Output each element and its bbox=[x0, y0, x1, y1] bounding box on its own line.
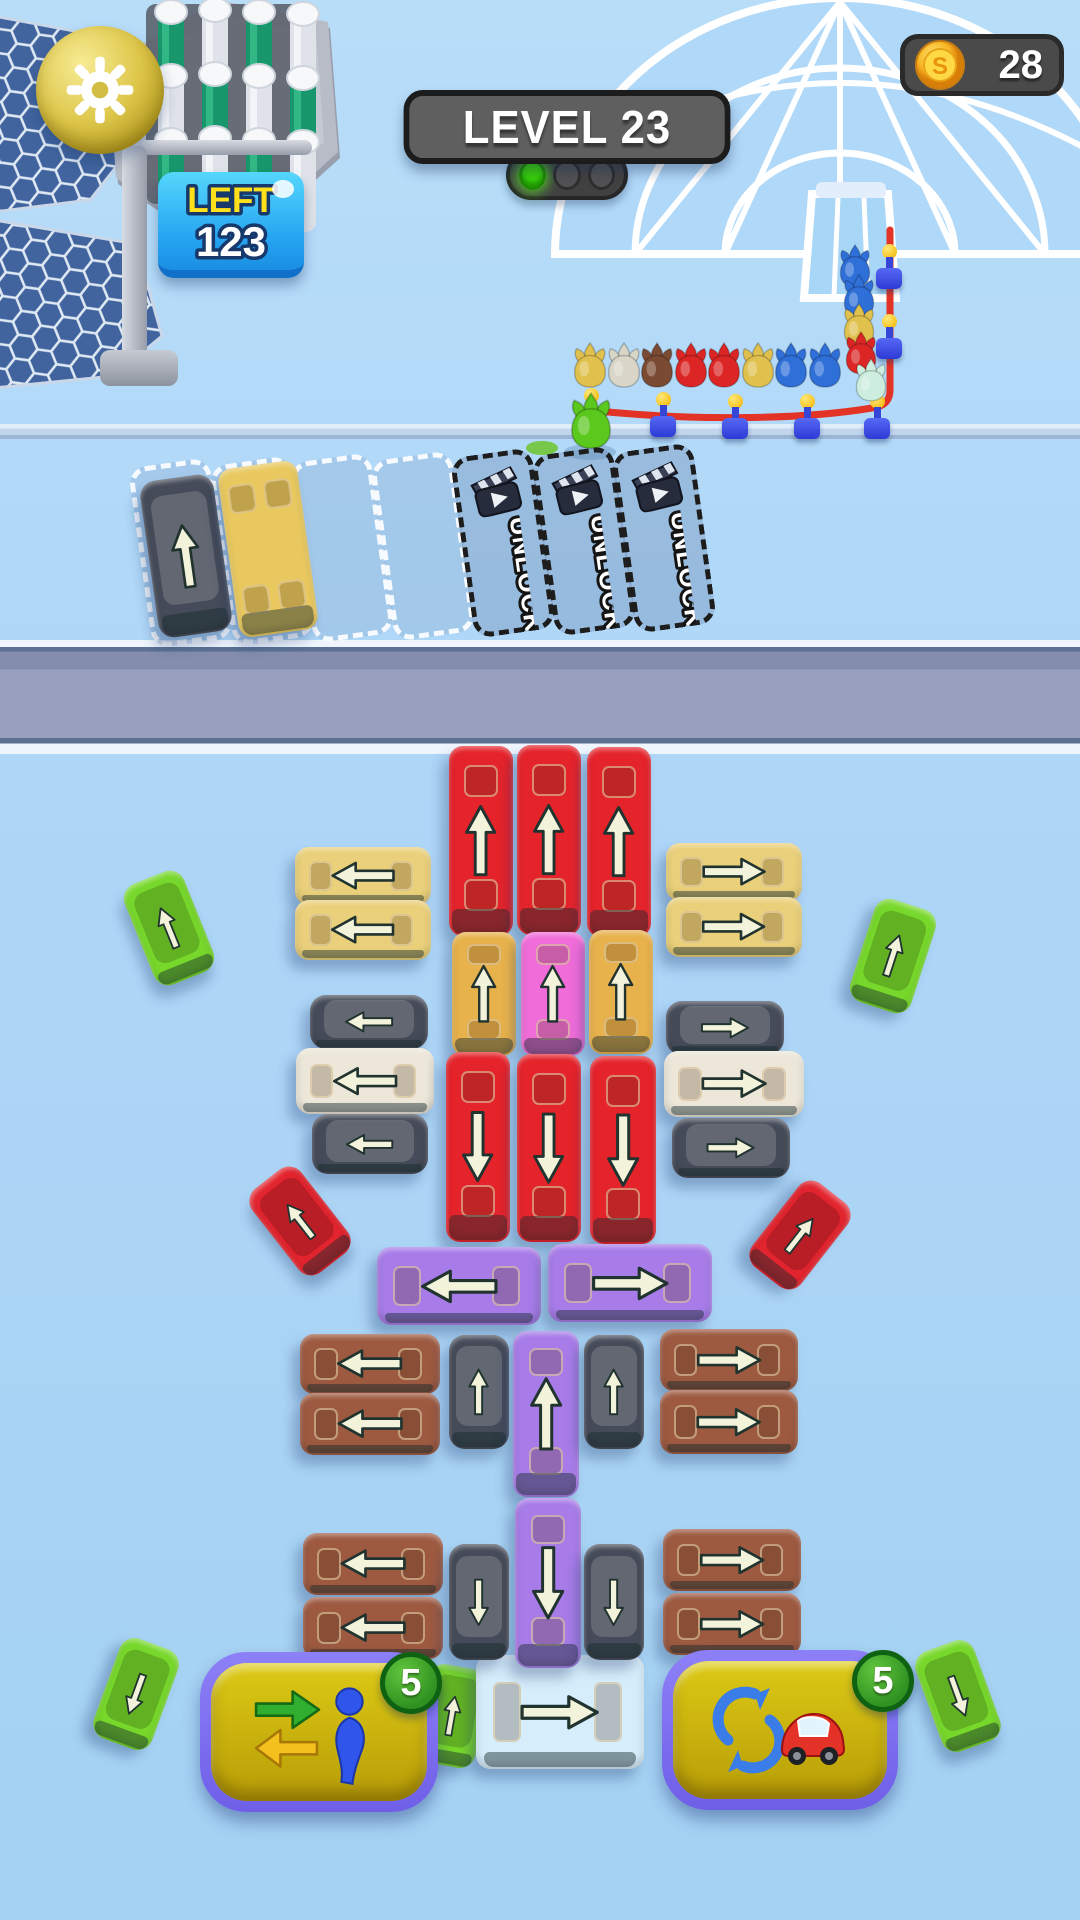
coin-counter: S 28 bbox=[900, 34, 1064, 96]
vehicle-front-face bbox=[307, 1445, 433, 1453]
vehicle-brown-bus-left[interactable] bbox=[300, 1393, 440, 1455]
swap-badge-count: 5 bbox=[400, 1662, 421, 1705]
vehicle-front-face bbox=[671, 1106, 797, 1115]
vehicle-white-bus-left[interactable] bbox=[296, 1048, 434, 1114]
vehicle-red-bus-down[interactable] bbox=[517, 1054, 581, 1242]
bus-window bbox=[536, 944, 569, 965]
unlock-label: UNLOCK bbox=[504, 515, 536, 635]
gray-light bbox=[588, 160, 615, 190]
direction-arrow-icon bbox=[346, 1128, 395, 1159]
direction-arrow-icon bbox=[700, 1014, 750, 1042]
swap-badge: 5 bbox=[380, 1652, 442, 1714]
bus-window bbox=[680, 857, 703, 887]
bus-window bbox=[309, 914, 332, 945]
ad-clapper-icon bbox=[468, 464, 524, 518]
direction-arrow-icon bbox=[606, 1105, 640, 1195]
bus-window bbox=[677, 1544, 700, 1576]
vehicle-front-face bbox=[302, 950, 424, 958]
vehicle-front-face bbox=[593, 1218, 652, 1242]
vehicle-brown-bus-right[interactable] bbox=[660, 1329, 798, 1391]
direction-arrow-icon bbox=[591, 1263, 670, 1304]
bus-window bbox=[531, 1515, 565, 1544]
game-screen: LEFT 123 LEVEL 23 S 28 UNLOCKUNLOCKUNLOC… bbox=[0, 0, 1080, 1920]
vehicle-green-car-up[interactable] bbox=[119, 866, 219, 990]
direction-arrow-icon bbox=[420, 1266, 499, 1307]
bus-window bbox=[262, 477, 293, 509]
direction-arrow-icon bbox=[700, 1067, 767, 1101]
vehicle-brown-bus-left[interactable] bbox=[303, 1533, 443, 1595]
vehicle-green-car-down[interactable] bbox=[89, 1634, 184, 1755]
vehicle-lightBlue-bus-right[interactable] bbox=[476, 1655, 644, 1769]
settings-button[interactable] bbox=[36, 26, 164, 154]
bus-window bbox=[467, 944, 500, 965]
direction-arrow-icon bbox=[330, 914, 395, 945]
road-band bbox=[0, 640, 1080, 754]
direction-arrow-icon bbox=[598, 1368, 629, 1416]
rope-post bbox=[876, 244, 902, 290]
direction-arrow-icon bbox=[336, 1408, 403, 1440]
unlock-label: UNLOCK bbox=[665, 510, 697, 630]
vehicle-black-car-up[interactable] bbox=[449, 1335, 509, 1449]
direction-arrow-icon bbox=[598, 1578, 629, 1627]
vehicle-purple-bus-up[interactable] bbox=[513, 1331, 579, 1497]
vehicle-front-face bbox=[303, 1103, 427, 1112]
bus-window bbox=[606, 1075, 640, 1107]
direction-arrow-icon bbox=[699, 1608, 765, 1640]
vehicle-front-face bbox=[667, 1381, 791, 1389]
vehicle-paleYellow-bus-right[interactable] bbox=[666, 897, 802, 957]
vehicle-front-face bbox=[673, 947, 795, 955]
bus-window bbox=[464, 765, 497, 797]
left-value: 123 bbox=[196, 218, 266, 265]
bus-window bbox=[529, 1348, 563, 1376]
vehicle-front-face bbox=[449, 1215, 507, 1240]
direction-arrow-icon bbox=[467, 964, 500, 1024]
left-label: LEFT bbox=[187, 181, 274, 220]
direction-arrow-icon bbox=[529, 1374, 563, 1454]
gray-light bbox=[553, 160, 580, 190]
vehicle-brown-bus-right[interactable] bbox=[663, 1529, 801, 1591]
vehicle-red-bus-up[interactable] bbox=[449, 746, 513, 936]
bus-window bbox=[564, 1263, 592, 1304]
direction-arrow-icon bbox=[344, 1008, 394, 1036]
bus-window bbox=[677, 1608, 700, 1640]
gear-icon bbox=[62, 52, 138, 128]
direction-arrow-icon bbox=[532, 794, 565, 885]
level-label: LEVEL 23 bbox=[463, 100, 671, 154]
direction-arrow-icon bbox=[536, 964, 569, 1024]
vehicle-front-face bbox=[310, 1585, 436, 1593]
vehicle-front-face bbox=[318, 1164, 422, 1172]
passenger-blue bbox=[805, 342, 845, 388]
vehicle-front-face bbox=[452, 909, 510, 934]
bus-window bbox=[604, 942, 637, 963]
direction-arrow-icon bbox=[706, 1132, 756, 1163]
rotate-car-icon bbox=[710, 1676, 850, 1784]
direction-arrow-icon bbox=[532, 1103, 565, 1193]
vehicle-pink-bus-up[interactable] bbox=[521, 932, 585, 1056]
vehicle-red-bus-down[interactable] bbox=[446, 1052, 510, 1242]
direction-arrow-icon bbox=[604, 962, 637, 1022]
vehicles-left-sign: LEFT 123 bbox=[158, 172, 304, 278]
direction-arrow-icon bbox=[330, 861, 395, 891]
vehicle-brown-bus-right[interactable] bbox=[660, 1390, 798, 1454]
direction-arrow-icon bbox=[339, 1548, 406, 1580]
rope-post bbox=[650, 392, 676, 438]
bus-window bbox=[602, 766, 635, 798]
bus-window bbox=[532, 764, 565, 796]
vehicle-redCar-car-up[interactable] bbox=[243, 1160, 357, 1282]
ad-clapper-icon bbox=[629, 459, 685, 513]
bus-window bbox=[314, 1408, 338, 1440]
vehicle-paleYellow-bus-right[interactable] bbox=[666, 843, 802, 901]
bus-window bbox=[227, 482, 258, 514]
bus-window bbox=[678, 1067, 702, 1101]
rope-post bbox=[722, 394, 748, 440]
vehicle-front-face bbox=[592, 1036, 650, 1052]
vehicle-red-bus-down[interactable] bbox=[590, 1056, 656, 1244]
sign-shine bbox=[272, 180, 294, 198]
unlock-label: UNLOCK bbox=[584, 512, 616, 632]
ad-clapper-icon bbox=[548, 462, 604, 516]
bus-window bbox=[310, 1064, 333, 1098]
vehicle-front-face bbox=[484, 1752, 635, 1767]
vehicle-front-face bbox=[520, 1216, 578, 1240]
vehicle-black-car-right[interactable] bbox=[672, 1118, 790, 1178]
direction-arrow-icon bbox=[463, 1578, 494, 1627]
vehicle-green-car-up[interactable] bbox=[846, 895, 940, 1017]
vehicle-paleYellow-bus-left[interactable] bbox=[295, 900, 431, 960]
passenger-mint bbox=[852, 358, 890, 402]
vehicle-front-face bbox=[385, 1313, 533, 1323]
vehicle-front-face bbox=[678, 1168, 784, 1176]
swap-passenger-icon bbox=[252, 1678, 386, 1786]
bus-window bbox=[314, 1348, 338, 1379]
vehicle-black-car-left[interactable] bbox=[310, 995, 428, 1049]
vehicle-black-car-down[interactable] bbox=[449, 1544, 509, 1660]
vehicle-front-face bbox=[587, 1643, 641, 1658]
bus-window bbox=[674, 1344, 697, 1376]
direction-arrow-icon bbox=[699, 1544, 765, 1576]
bus-window bbox=[532, 1073, 565, 1105]
direction-arrow-icon bbox=[461, 1101, 494, 1192]
vehicle-front-face bbox=[524, 1038, 582, 1054]
vehicle-black-car-down[interactable] bbox=[584, 1544, 644, 1660]
vehicle-front-face bbox=[520, 908, 578, 933]
direction-arrow-icon bbox=[701, 911, 766, 942]
coin-count: 28 bbox=[999, 43, 1044, 88]
bus-window bbox=[674, 1405, 697, 1438]
bus-window bbox=[393, 1266, 421, 1307]
direction-arrow-icon bbox=[332, 1064, 398, 1098]
direction-arrow-icon bbox=[696, 1344, 762, 1376]
direction-arrow-icon bbox=[701, 857, 766, 887]
vehicle-front-face bbox=[452, 1643, 506, 1658]
vehicle-red-bus-up[interactable] bbox=[517, 745, 581, 935]
vehicle-purple-bus-left[interactable] bbox=[377, 1247, 541, 1325]
vehicle-green-car-down[interactable] bbox=[911, 1636, 1006, 1757]
rope-post bbox=[794, 394, 820, 440]
direction-arrow-icon bbox=[463, 1368, 494, 1416]
vehicle-black-car-left[interactable] bbox=[312, 1114, 428, 1174]
bus-window bbox=[317, 1548, 341, 1580]
vehicle-front-face bbox=[670, 1581, 794, 1589]
green-light bbox=[519, 160, 546, 190]
direction-arrow-icon bbox=[696, 1405, 762, 1438]
vehicle-front-face bbox=[516, 1473, 575, 1495]
direction-arrow-icon bbox=[602, 796, 635, 887]
vehicle-front-face bbox=[587, 1432, 641, 1447]
rotate-badge-count: 5 bbox=[872, 1660, 893, 1703]
direction-arrow-icon bbox=[531, 1542, 565, 1624]
vehicle-redCar-car-up[interactable] bbox=[743, 1174, 857, 1296]
passenger-green bbox=[566, 392, 616, 450]
bus-window bbox=[461, 1071, 494, 1103]
vehicle-front-face bbox=[316, 1040, 422, 1047]
vehicle-front-face bbox=[556, 1310, 704, 1320]
bus-window bbox=[493, 1682, 522, 1741]
svg-text:S: S bbox=[932, 53, 948, 80]
level-banner: LEVEL 23 bbox=[404, 90, 731, 164]
vehicle-black-car-up[interactable] bbox=[584, 1335, 644, 1449]
vehicle-brown-bus-left[interactable] bbox=[303, 1597, 443, 1659]
vehicle-purple-bus-right[interactable] bbox=[548, 1244, 712, 1322]
vehicle-white-bus-right[interactable] bbox=[664, 1051, 804, 1117]
vehicle-deepYellow-bus-up[interactable] bbox=[589, 930, 653, 1054]
rotate-badge: 5 bbox=[852, 1650, 914, 1712]
vehicle-front-face bbox=[518, 1644, 577, 1666]
vehicle-deepYellow-bus-up[interactable] bbox=[452, 932, 516, 1056]
direction-arrow-icon bbox=[336, 1348, 403, 1379]
coin-icon: S bbox=[913, 38, 967, 92]
vehicle-paleYellow-bus-left[interactable] bbox=[295, 847, 431, 905]
vehicle-black-car-right[interactable] bbox=[666, 1001, 784, 1055]
direction-arrow-icon bbox=[339, 1612, 406, 1644]
direction-arrow-icon bbox=[464, 795, 497, 886]
bus-window bbox=[680, 911, 703, 942]
vehicle-front-face bbox=[452, 1432, 506, 1447]
vehicle-red-bus-up[interactable] bbox=[587, 747, 651, 937]
vehicle-front-face bbox=[667, 1444, 791, 1452]
bus-window bbox=[309, 861, 332, 891]
vehicle-front-face bbox=[307, 1384, 433, 1392]
vehicle-purple-bus-down[interactable] bbox=[515, 1498, 581, 1668]
direction-arrow-icon bbox=[520, 1682, 601, 1741]
bus-window bbox=[317, 1612, 341, 1644]
vehicle-brown-bus-right[interactable] bbox=[663, 1593, 801, 1655]
vehicle-brown-bus-left[interactable] bbox=[300, 1334, 440, 1394]
